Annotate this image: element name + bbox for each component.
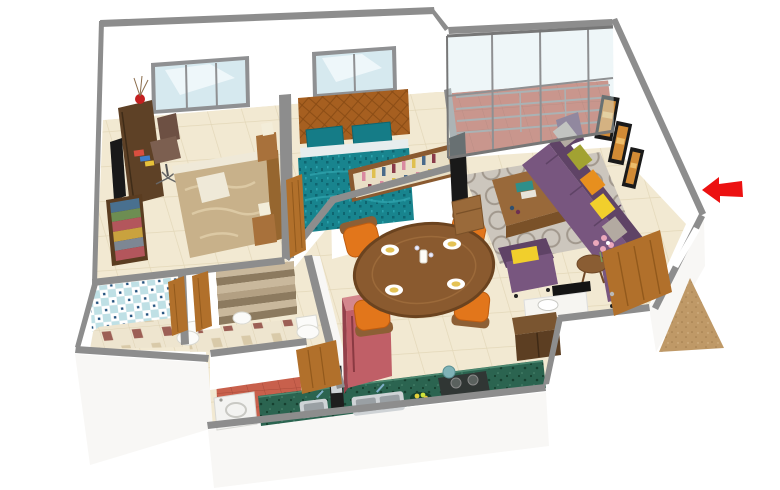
place-setting (447, 279, 465, 290)
floor-plan-render (0, 0, 780, 490)
bottle (432, 154, 436, 163)
mullion (540, 31, 541, 143)
burner (451, 378, 461, 388)
window-mullion (216, 63, 217, 109)
nightstand (252, 214, 277, 246)
place-setting (381, 245, 399, 256)
balcony-glass-wall (447, 27, 614, 158)
napkin (452, 281, 461, 286)
shower-curtain (216, 261, 297, 325)
washbasin-pedestal (233, 312, 251, 324)
entrance-arrow-icon (702, 177, 743, 203)
bottle (516, 210, 520, 214)
place-setting (385, 285, 403, 296)
bottle (372, 169, 376, 178)
basin (538, 300, 558, 311)
bottle (402, 161, 406, 170)
table-vase (420, 250, 427, 263)
place-setting (443, 239, 461, 250)
mullion (588, 29, 589, 135)
tv-cabinet (452, 195, 484, 235)
wardrobe (106, 194, 148, 266)
washer-dial (219, 398, 222, 401)
fruit (415, 394, 420, 399)
napkin (448, 241, 457, 246)
door-handle (610, 292, 614, 296)
lamp (258, 202, 271, 216)
glass (429, 253, 433, 257)
glass (415, 246, 419, 250)
napkin (390, 287, 399, 292)
caster (514, 294, 518, 298)
flower (606, 241, 610, 245)
master-window (312, 46, 397, 98)
table-top (577, 255, 607, 273)
flower (593, 240, 599, 246)
bedroom-window (151, 56, 250, 114)
kettle (443, 366, 455, 378)
window-mullion (354, 54, 355, 92)
bottle (412, 159, 416, 168)
bottle (362, 172, 366, 181)
bottle (422, 156, 426, 165)
glass-jamb (447, 36, 448, 158)
bottle (510, 206, 514, 210)
caster (546, 288, 550, 292)
burner (468, 375, 478, 385)
bottle (382, 167, 386, 176)
window-mullion (186, 65, 187, 111)
toilet-bowl (297, 325, 319, 339)
bottle (392, 164, 396, 173)
lamp (261, 122, 274, 136)
napkin (386, 247, 395, 252)
floor-plan-svg (0, 0, 780, 490)
nightstand (256, 132, 278, 162)
flower (601, 235, 607, 241)
toilet-2 (296, 315, 319, 339)
southwest-bath-wall-face (75, 354, 213, 465)
